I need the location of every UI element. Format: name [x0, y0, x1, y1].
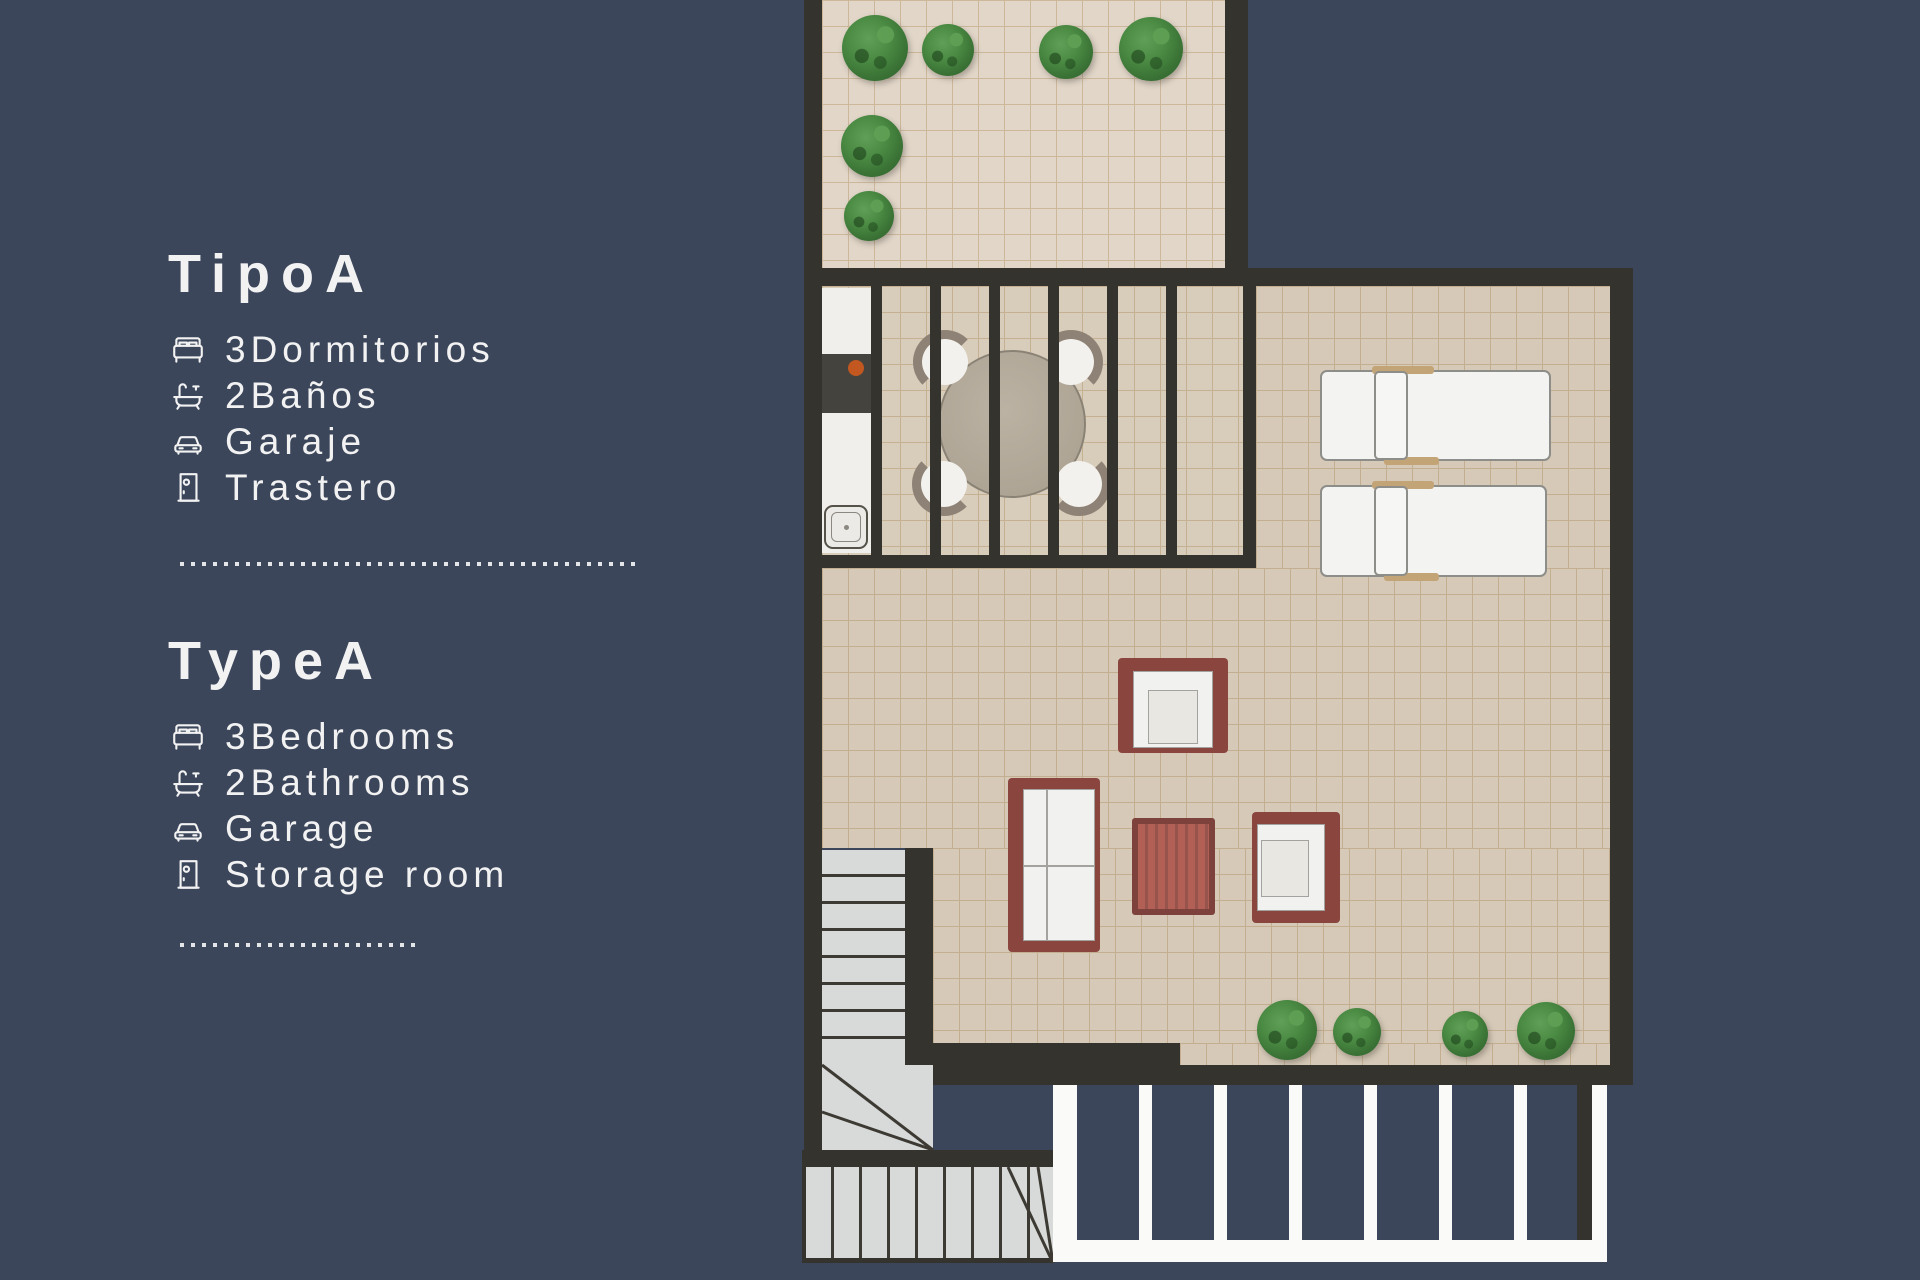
wall-left — [804, 0, 822, 1152]
garage-grille — [1053, 1085, 1607, 1262]
wall-pergola-right — [1243, 286, 1256, 568]
sofa-cushion-divider — [1023, 865, 1095, 867]
sink-drain — [844, 525, 849, 530]
plant — [1333, 1008, 1381, 1056]
plant — [1039, 25, 1093, 79]
sofa-backrest-line — [1046, 789, 1048, 941]
sun-lounger — [1320, 485, 1547, 577]
wall-top — [804, 268, 1633, 286]
wall-terrace-right — [1225, 0, 1248, 268]
cooktop-burner — [848, 360, 864, 376]
sofa — [1008, 778, 1100, 952]
sink-basin — [831, 512, 861, 542]
plant — [1517, 1002, 1575, 1060]
armchair-seat — [1261, 840, 1309, 897]
wall-bottom-left — [933, 1043, 1180, 1085]
plant — [1442, 1011, 1488, 1057]
staircase-upper-flight — [822, 850, 905, 1063]
lounger-headrest — [1374, 486, 1408, 576]
grille-right-post — [1577, 1085, 1592, 1240]
grille-slats — [1077, 1085, 1577, 1240]
armchair-top — [1118, 658, 1228, 753]
sun-lounger — [1320, 370, 1551, 461]
wall-pergola-bottom — [822, 555, 1256, 568]
armchair-seat — [1148, 690, 1198, 744]
kitchen-sink — [824, 505, 868, 549]
plant — [841, 115, 903, 177]
wall-right — [1610, 268, 1633, 1085]
plant — [1119, 17, 1183, 81]
pergola-slats — [871, 286, 1222, 555]
wall-stair-right — [905, 848, 933, 1065]
wall-stair-bottom — [802, 1150, 1053, 1167]
plant — [842, 15, 908, 81]
kitchen-cooktop — [818, 354, 871, 413]
armchair-right — [1252, 812, 1340, 923]
coffee-table — [1132, 818, 1215, 915]
lounger-headrest — [1374, 371, 1408, 460]
brochure-page: TipoA 3Dormitorios 2Baños — [0, 0, 1920, 1280]
plant — [1257, 1000, 1317, 1060]
wall-bottom-right — [1180, 1065, 1633, 1085]
floor-plan — [0, 0, 1920, 1280]
plant — [922, 24, 974, 76]
kitchen-counter — [818, 288, 873, 553]
plant — [844, 191, 894, 241]
